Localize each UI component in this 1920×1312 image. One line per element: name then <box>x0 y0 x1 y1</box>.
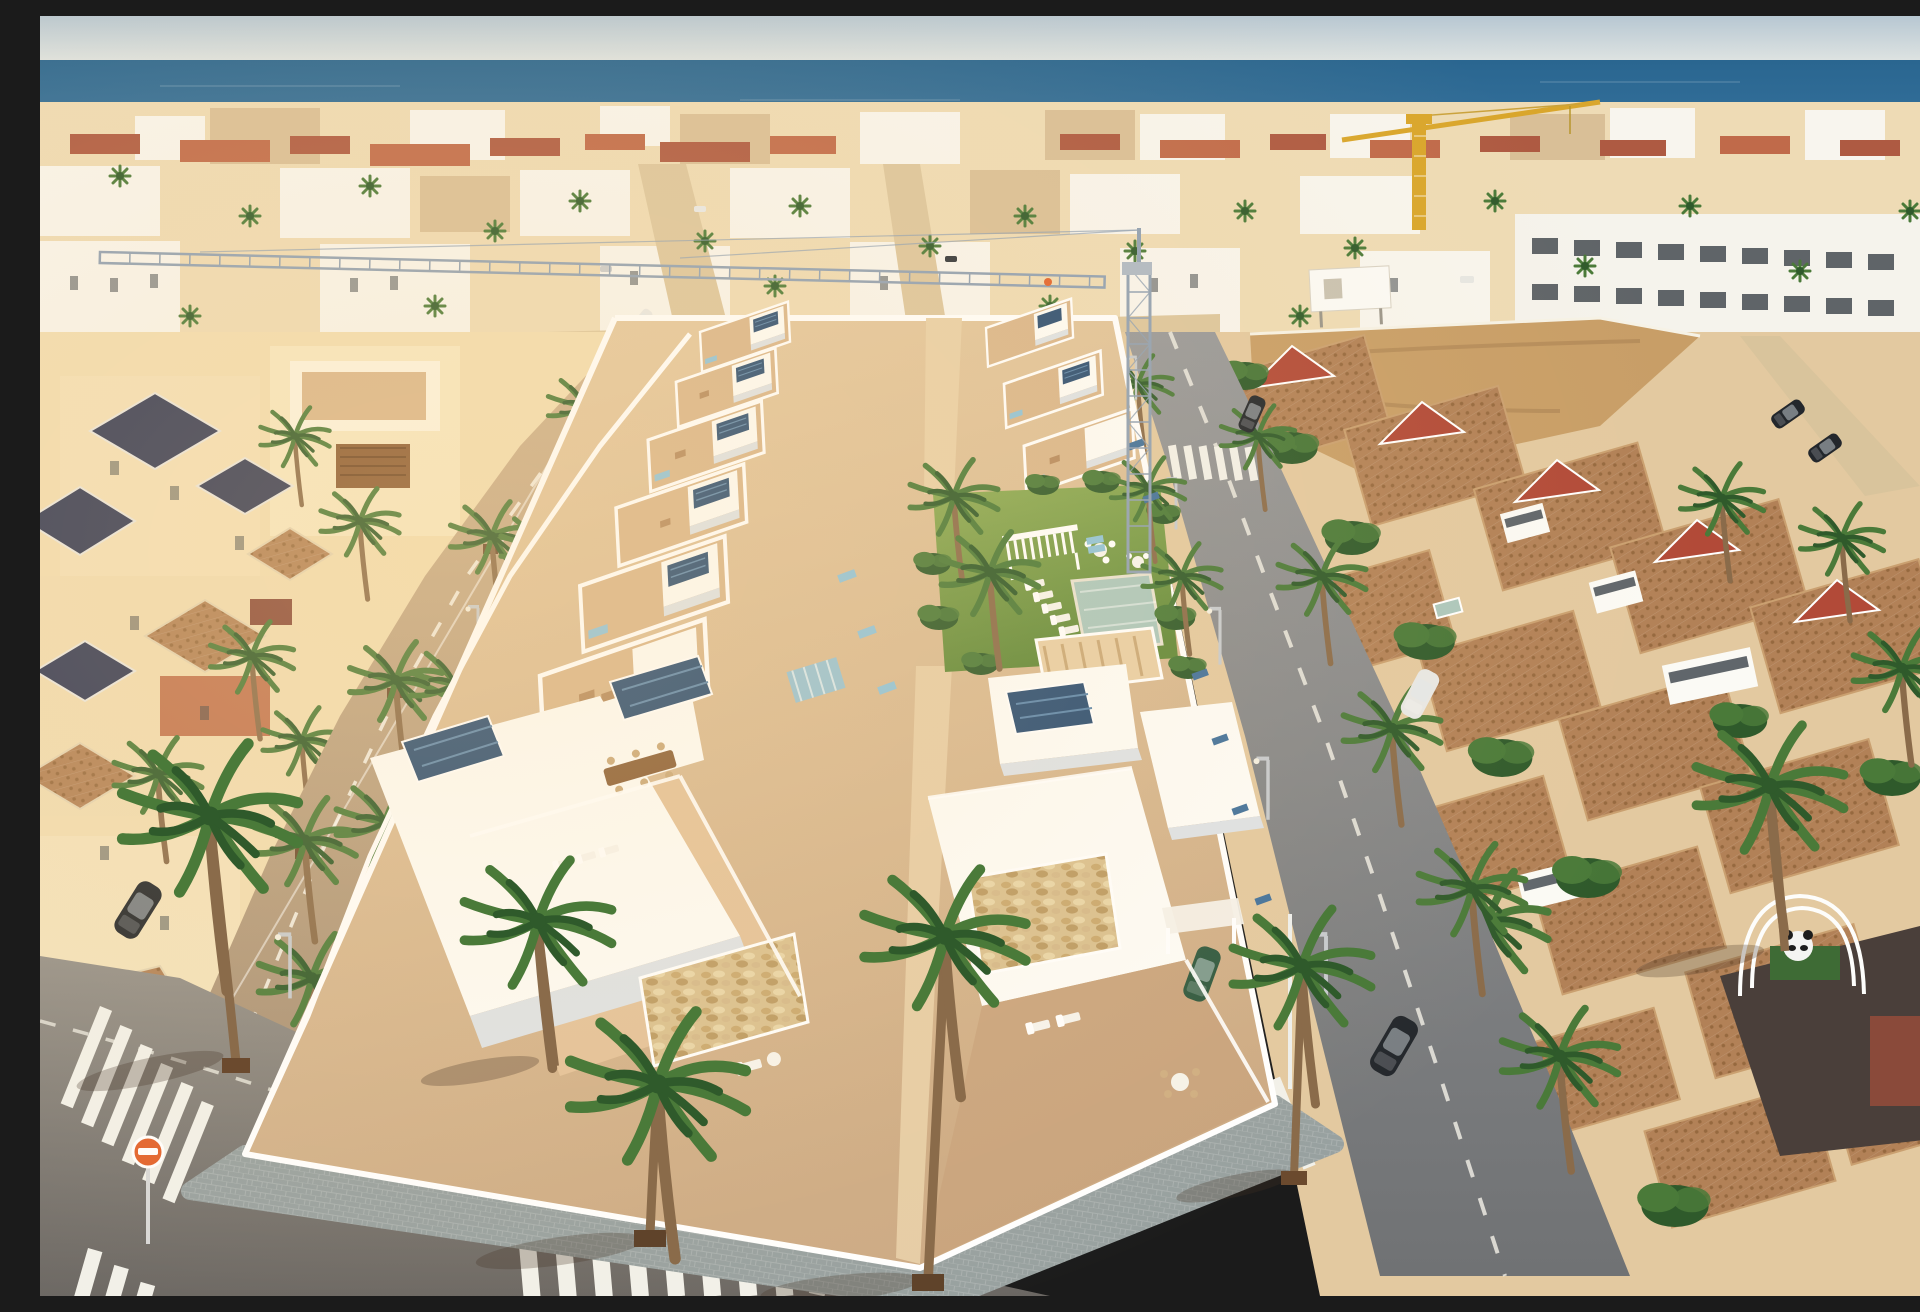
aerial-render-photo: Aerial golden-hour render of a new-build… <box>40 16 1920 1296</box>
golden-hour-glow <box>40 16 1920 1296</box>
scene-canvas: Aerial golden-hour render of a new-build… <box>40 16 1920 1296</box>
